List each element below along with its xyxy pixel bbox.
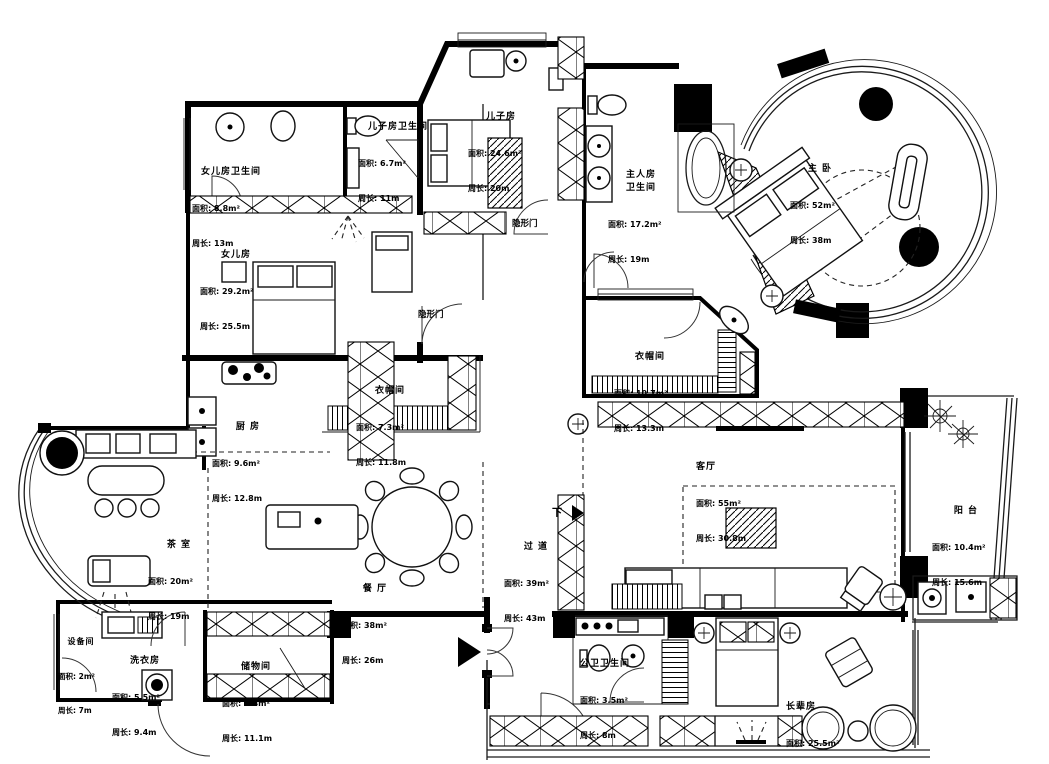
room-label-closet-master: 衣帽间 面积: 10.7m² 周长: 13.3m [614,328,686,458]
room-name: 阳 台 [932,505,1000,518]
room-name: 客厅 [696,461,766,474]
room-label-laundry-room: 洗衣房 面积: 5.5m² 周长: 9.4m [112,632,178,762]
room-perimeter: 周长: 8m [580,730,646,742]
room-perimeter: 周长: 11m [358,193,438,205]
room-perimeter: 周长: 20m [468,183,534,195]
room-area: 面积: 9.6m² [212,458,284,470]
room-label-tea-room: 茶 室 面积: 20m² 周长: 19m [148,516,210,646]
room-label-elder-room: 长辈房 面积: 25.5m² 周长: 21.5m [786,678,858,764]
room-label-dining-room: 餐 厅 面积: 38m² 周长: 26m [342,560,408,690]
room-area: 面积: 6.7m² [358,158,438,170]
room-name: 女儿房 [200,249,272,262]
hidden-door-label-1: 隐形门 [512,217,538,229]
room-area: 面积: 24.6m² [468,148,534,160]
room-label-master-bedroom: 主 卧 面积: 52m² 周长: 38m [790,140,850,270]
room-label-equipment-room: 设备间 面积: 2m² 周长: 7m [58,613,104,740]
room-area: 面积: 39m² [504,578,568,590]
room-name: 长辈房 [786,701,858,714]
room-area: 面积: 55m² [696,498,766,510]
entry-arrow [458,637,481,667]
room-area: 面积: 6.8m² [222,698,290,710]
bottom-cabinets [490,716,802,746]
room-perimeter: 周长: 30.8m [696,533,766,545]
room-name: 儿子房卫生间 [358,121,438,134]
room-label-master-bathroom: 主人房 卫生间 面积: 17.2m² 周长: 19m [608,146,674,289]
room-perimeter: 周长: 38m [790,235,850,247]
room-area: 面积: 52m² [790,200,850,212]
room-name: 厨 房 [212,421,284,434]
room-label-son-room: 儿子房 面积: 24.6m² 周长: 20m [468,88,534,218]
room-name: 过 道 [504,541,568,554]
room-area: 面积: 5.5m² [112,692,178,704]
room-label-kitchen: 厨 房 面积: 9.6m² 周长: 12.8m [212,398,284,528]
room-label-closet-small: 衣帽间 面积: 7.3m² 周长: 11.8m [356,362,424,492]
room-area: 面积: 2m² [58,672,104,683]
room-name: 餐 厅 [342,583,408,596]
room-area: 面积: 38m² [342,620,408,632]
room-name: 衣帽间 [356,385,424,398]
room-area: 面积: 8.8m² [192,203,270,215]
room-area: 面积: 3.5m² [580,695,646,707]
room-perimeter: 周长: 7m [58,706,104,717]
room-name: 儿子房 [468,111,534,124]
room-perimeter: 周长: 19m [608,254,674,266]
room-area: 面积: 10.4m² [932,542,1000,554]
room-area: 面积: 25.5m² [786,738,858,750]
room-perimeter: 周长: 19m [148,611,210,623]
room-name: 主人房 卫生间 [608,169,674,195]
room-area: 面积: 10.7m² [614,388,686,400]
room-label-hallway: 过 道 面积: 39m² 周长: 43m [504,518,568,648]
room-perimeter: 周长: 11.8m [356,457,424,469]
room-label-living-room: 客厅 面积: 55m² 周长: 30.8m [696,438,766,568]
room-name: 设备间 [58,636,104,648]
room-label-son-bathroom: 儿子房卫生间 面积: 6.7m² 周长: 11m [358,98,438,228]
room-name: 储物间 [222,661,290,674]
room-label-public-bathroom: 公卫卫生间 面积: 3.5m² 周长: 8m [580,635,646,764]
stairs-down-indicator: 下 [552,504,562,519]
room-perimeter: 周长: 26m [342,655,408,667]
room-perimeter: 周长: 9.4m [112,727,178,739]
room-perimeter: 周长: 15.6m [932,577,1000,589]
room-area: 面积: 7.3m² [356,422,424,434]
floor-plan: 女儿房卫生间 面积: 8.8m² 周长: 13m 儿子房卫生间 面积: 6.7m… [0,0,1049,764]
room-perimeter: 周长: 43m [504,613,568,625]
room-perimeter: 周长: 13.3m [614,423,686,435]
room-name: 衣帽间 [614,351,686,364]
room-area: 面积: 29.2m² [200,286,272,298]
room-perimeter: 周长: 25.5m [200,321,272,333]
room-name: 洗衣房 [112,655,178,668]
room-name: 主 卧 [790,163,850,176]
room-perimeter: 周长: 12.8m [212,493,284,505]
hidden-door-label-2: 隐形门 [418,308,444,320]
room-area: 面积: 20m² [148,576,210,588]
room-name: 茶 室 [148,539,210,552]
room-area: 面积: 17.2m² [608,219,674,231]
room-label-balcony: 阳 台 面积: 10.4m² 周长: 15.6m [932,482,1000,612]
room-name: 公卫卫生间 [580,658,646,671]
room-label-daughter-room: 女儿房 面积: 29.2m² 周长: 25.5m [200,226,272,356]
room-label-storage-room: 储物间 面积: 6.8m² 周长: 11.1m [222,638,290,764]
room-perimeter: 周长: 11.1m [222,733,290,745]
room-name: 女儿房卫生间 [192,166,270,179]
down-label: 下 [552,504,562,519]
